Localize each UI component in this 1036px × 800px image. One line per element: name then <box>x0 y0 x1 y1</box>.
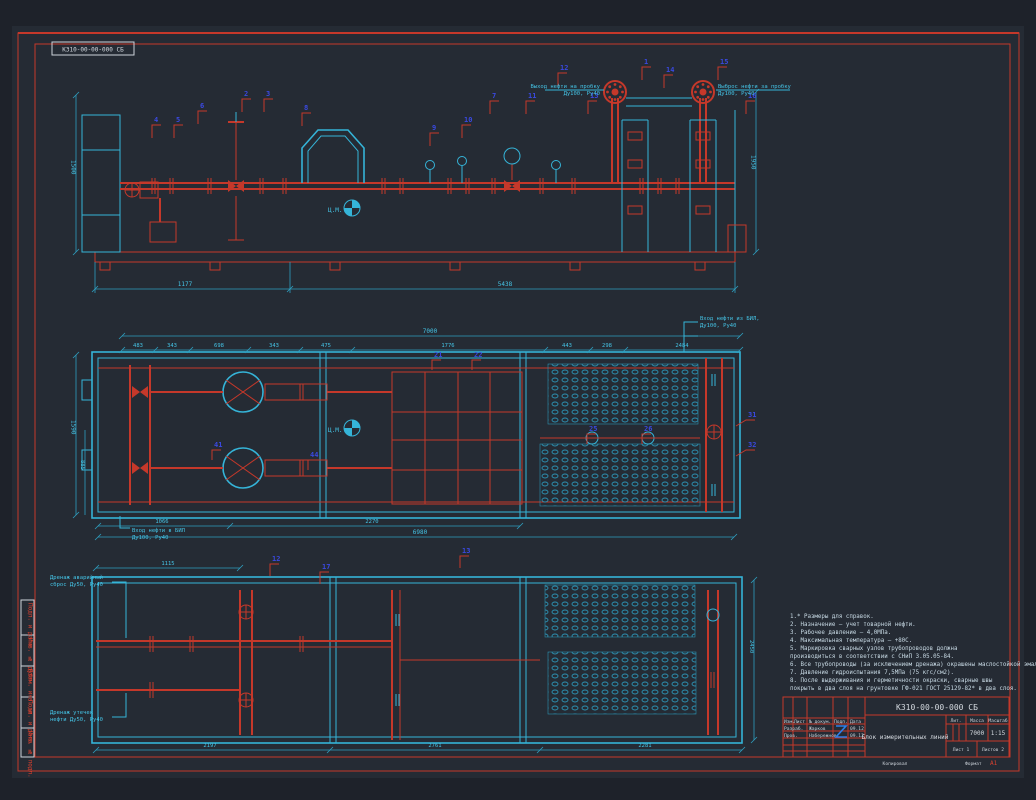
pipe-label: Дренаж аварийный <box>50 575 103 581</box>
dimension-label: 1066 <box>155 519 168 525</box>
pipe-label: Ду100, Ру40 <box>564 91 600 97</box>
note-line: 7. Давление гидроиспытания 7,5МПа (75 кг… <box>790 670 954 676</box>
dimension-label: 2450 <box>748 640 754 653</box>
note-line: 2. Назначение — учет товарной нефти. <box>790 622 916 628</box>
callout-balloon: 14 <box>666 66 674 74</box>
callout-balloon: 5 <box>176 116 180 124</box>
tb-header-sign: Подп. <box>834 719 848 725</box>
pipe-label: Ду100, Ру40 <box>718 91 754 97</box>
tb-role: Пров. <box>784 733 798 739</box>
dimension-label: 2484 <box>675 343 689 349</box>
callout-balloon: 6 <box>200 102 204 110</box>
tb-title: Блок измерительных линий <box>862 734 949 741</box>
note-line: 5. Маркировка сварных узлов трубопроводо… <box>790 645 958 652</box>
dimension-label: 1776 <box>441 343 454 349</box>
dimension-label: 6980 <box>413 529 428 536</box>
callout-balloon: 1 <box>644 58 648 66</box>
dimension-label: 2281 <box>638 743 651 749</box>
tb-name: Жарков <box>809 726 826 732</box>
tb-sheets: Листов 2 <box>982 747 1004 753</box>
tb-col-scale: Масштаб <box>988 717 1008 724</box>
pipe-label: нефти Ду50, Ру40 <box>50 717 103 723</box>
dimension-label: 443 <box>562 343 572 349</box>
callout-balloon: 9 <box>432 124 436 132</box>
tb-col-lit: Лит. <box>950 718 961 724</box>
tb-mass-value: 7000 <box>970 730 985 737</box>
callout-balloon: 15 <box>720 58 728 66</box>
dimension-label: 1950 <box>750 155 757 170</box>
pipe-label: сброс Ду50, Ру40 <box>50 581 103 588</box>
center-of-mass-label: Ц.М. <box>328 207 342 214</box>
pipe-label: Выброс нефти за пробку <box>718 83 792 90</box>
note-line: 3. Рабочее давление — 4,0МПа. <box>790 629 891 636</box>
callout-balloon: 2 <box>244 90 248 98</box>
drawing-sheet: Подп. и дата Инв. № дубл. Взам. инв. № П… <box>0 0 1036 800</box>
dimension-label: 1500 <box>70 160 77 175</box>
cad-viewport: Подп. и дата Инв. № дубл. Взам. инв. № П… <box>0 0 1036 800</box>
callout-balloon: 41 <box>214 441 222 449</box>
note-line: 1.* Размеры для справок. <box>790 614 874 620</box>
margin-box-label: Инв. № подл. <box>27 731 34 778</box>
dimension-label: 2197 <box>203 743 216 749</box>
note-line: 6. Все трубопроводы (за исключением дрен… <box>790 661 1036 668</box>
note-line: 8. После выдерживания и герметичности ок… <box>790 678 993 684</box>
callout-balloon: 13 <box>462 547 470 555</box>
pipe-label: Ду100, Ру40 <box>700 323 736 329</box>
tb-date: 09.12 <box>850 726 864 732</box>
dimension-label: 2270 <box>365 519 378 525</box>
tb-sheet: Лист 1 <box>953 747 970 753</box>
tb-format-label: Формат <box>965 761 982 767</box>
tb-role: Разраб. <box>784 725 803 732</box>
dimension-label: 698 <box>214 343 224 349</box>
dimension-label: 5438 <box>498 281 513 288</box>
note-line: 4. Максимальная температура — +80С. <box>790 638 912 644</box>
tb-name: Набережнов <box>809 732 837 739</box>
dimension-label: 1177 <box>178 281 193 288</box>
note-line: покрыть в два слоя на грунтовке ГФ-021 Г… <box>790 686 1017 692</box>
tb-format-value: А1 <box>990 760 998 767</box>
pipe-label: Дренаж утечек <box>50 710 94 716</box>
dimension-label: 298 <box>602 343 612 349</box>
pipe-label: Ду100, Ру40 <box>132 535 168 541</box>
callout-balloon: 32 <box>748 441 756 449</box>
tb-header-list: Лист <box>794 719 805 725</box>
dimension-label: 1590 <box>70 420 77 435</box>
tb-header-doc: № докум. <box>809 719 831 725</box>
callout-balloon: 44 <box>310 451 318 459</box>
callout-balloon: 26 <box>644 425 652 433</box>
callout-balloon: 3 <box>266 90 270 98</box>
tb-header-date: Дата <box>850 719 861 725</box>
callout-balloon: 7 <box>492 92 496 100</box>
callout-balloon: 22 <box>474 351 482 359</box>
corner-code: К310-00-00-000 СБ <box>62 47 124 54</box>
dimension-label: 1115 <box>161 561 174 567</box>
center-of-mass-label: Ц.М. <box>328 427 342 434</box>
pipe-label: Выход нефти на пробку <box>530 83 600 90</box>
callout-balloon: 31 <box>748 411 756 419</box>
pipe-label: Вход нефти из БИЛ, <box>700 316 760 322</box>
callout-balloon: 11 <box>528 92 536 100</box>
callout-balloon: 10 <box>464 116 472 124</box>
dimension-label: 343 <box>269 343 279 349</box>
dimension-label: 475 <box>321 343 331 349</box>
callout-balloon: 8 <box>304 104 308 112</box>
callout-balloon: 4 <box>154 116 158 124</box>
dimension-label: 483 <box>133 343 143 349</box>
tb-code: К310-00-00-000 СБ <box>896 703 978 712</box>
tb-col-mass: Масса <box>970 718 984 724</box>
pipe-label: Вход нефти в БИЛ <box>132 528 185 534</box>
callout-balloon: 17 <box>322 563 330 571</box>
callout-balloon: 21 <box>434 351 442 359</box>
note-line: производиться в соответствии с СНиП 3.05… <box>790 654 954 660</box>
callout-balloon: 25 <box>589 425 597 433</box>
dimension-label: 2761 <box>428 743 441 749</box>
callout-balloon: 12 <box>272 555 280 563</box>
dimension-label: 7000 <box>423 328 438 335</box>
dimension-label: 885 <box>79 460 85 470</box>
tb-scale-value: 1:15 <box>991 730 1006 737</box>
dimension-label: 343 <box>167 343 177 349</box>
tb-copied: Копировал <box>883 761 908 767</box>
callout-balloon: 12 <box>560 64 568 72</box>
